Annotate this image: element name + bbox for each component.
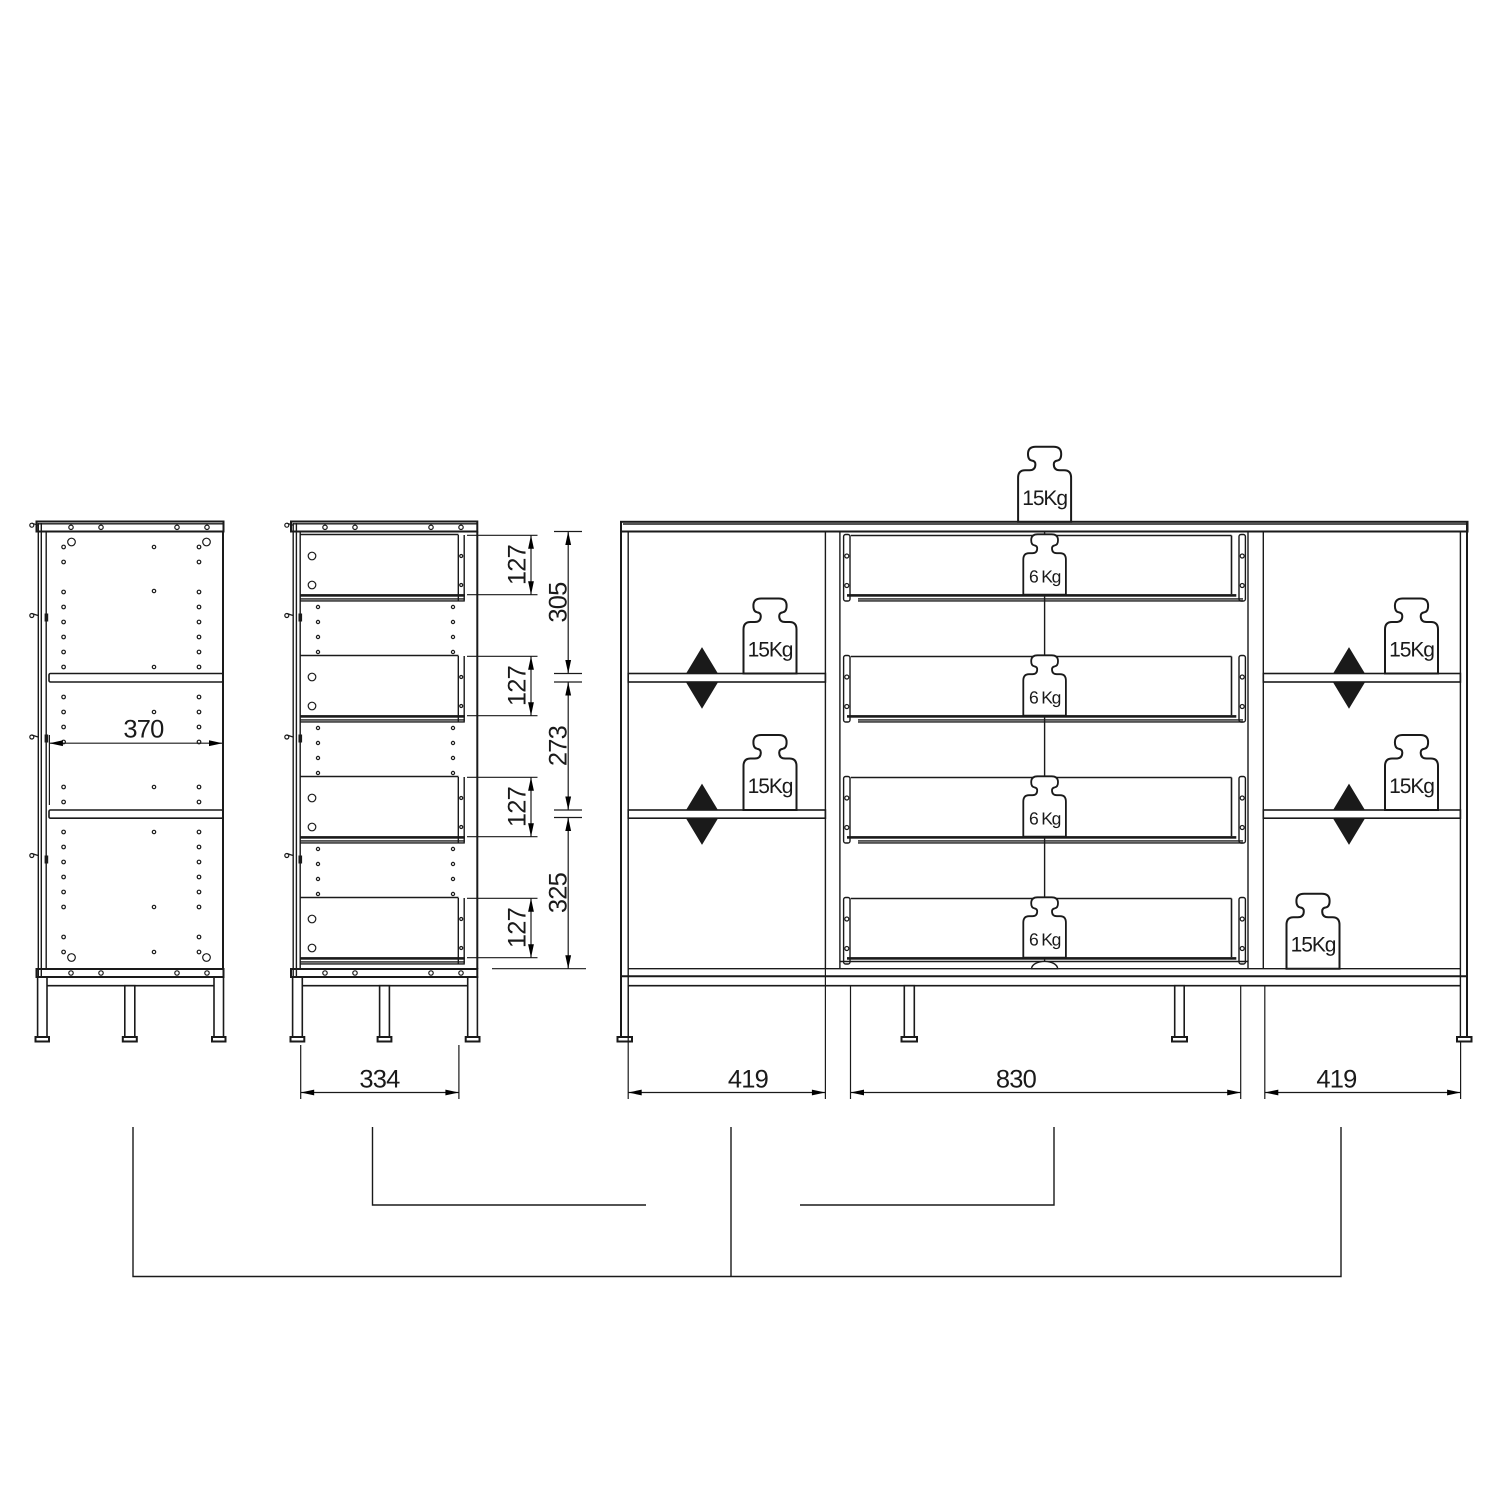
svg-text:127: 127 bbox=[504, 908, 532, 948]
svg-text:370: 370 bbox=[123, 716, 164, 744]
svg-text:127: 127 bbox=[504, 787, 532, 827]
svg-text:305: 305 bbox=[545, 582, 573, 623]
svg-text:325: 325 bbox=[545, 872, 573, 913]
svg-text:830: 830 bbox=[996, 1066, 1037, 1094]
svg-text:127: 127 bbox=[504, 545, 532, 585]
svg-text:273: 273 bbox=[545, 725, 573, 766]
svg-text:419: 419 bbox=[728, 1066, 768, 1094]
svg-text:334: 334 bbox=[359, 1066, 400, 1094]
svg-text:419: 419 bbox=[1316, 1066, 1356, 1094]
svg-text:127: 127 bbox=[504, 666, 532, 706]
